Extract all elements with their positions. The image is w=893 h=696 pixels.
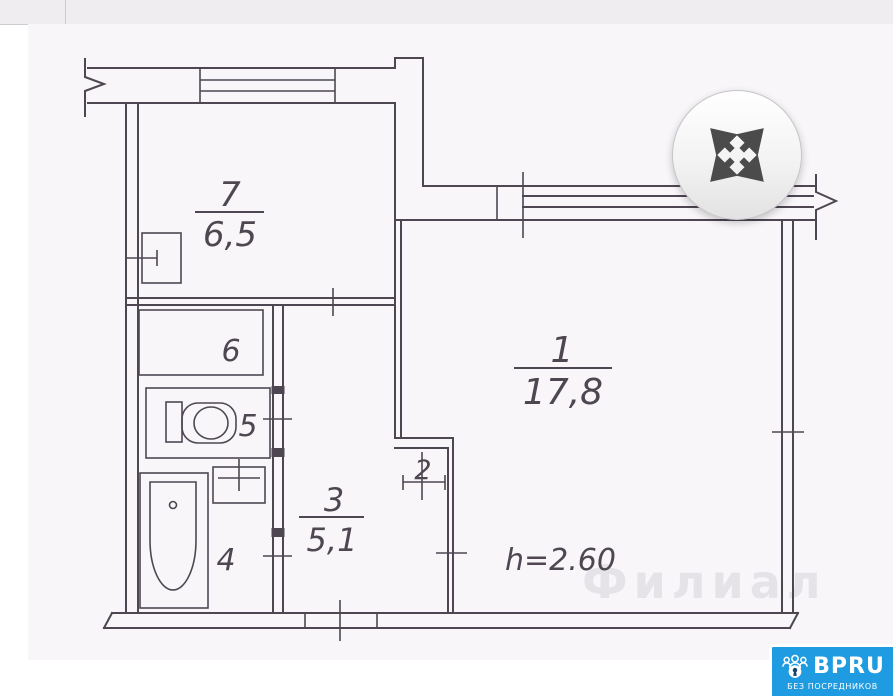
page-margin-rule: [0, 24, 28, 25]
fullscreen-button[interactable]: [672, 90, 802, 220]
room-labels-group: 7 6,5 1 17,8 3 5,1 6 5 4 2 h=2.60: [203, 175, 616, 578]
room-4-number: 4: [216, 543, 235, 578]
room-2-number: 2: [414, 455, 431, 486]
room-1-area: 17,8: [523, 372, 603, 413]
people-keyhole-icon: [780, 653, 810, 681]
expand-arrows-icon: [707, 125, 767, 185]
room-3-area: 5,1: [307, 521, 358, 559]
strip-divider-line: [65, 0, 66, 24]
floor-plan-image[interactable]: Филиал 7 6,5 1 17,8 3 5,1 6 5 4 2 h=2.60: [28, 24, 893, 660]
logo-brand: BPRU: [813, 656, 885, 678]
bpru-logo[interactable]: BPRU БЕЗ ПОСРЕДНИКОВ: [769, 644, 893, 696]
room-1-number: 1: [551, 330, 574, 371]
room-5-number: 5: [238, 409, 257, 444]
room-6-number: 6: [221, 334, 240, 369]
gallery-image-top-edge: [0, 0, 893, 24]
room-7-number: 7: [219, 175, 241, 215]
ceiling-height-label: h=2.60: [505, 543, 616, 578]
room-3-number: 3: [324, 481, 344, 519]
label-fraction-lines: [195, 212, 612, 517]
room-7-area: 6,5: [203, 215, 257, 255]
watermark-text: Филиал: [582, 555, 827, 609]
logo-tagline: БЕЗ ПОСРЕДНИКОВ: [787, 683, 878, 691]
